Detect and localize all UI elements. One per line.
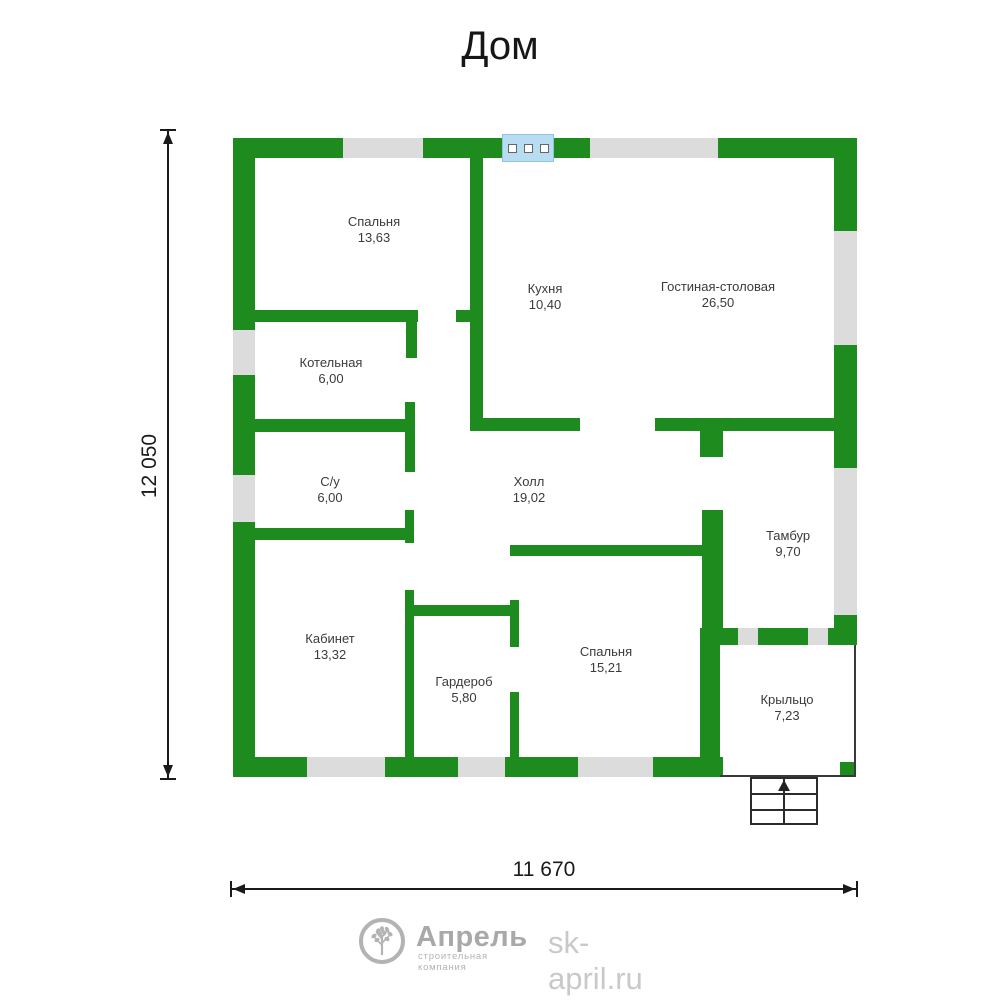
- wall-segment: [700, 645, 720, 777]
- wall-segment: [405, 402, 415, 472]
- room-name: Спальня: [580, 644, 632, 659]
- tree-icon: [367, 925, 397, 957]
- wall-segment: [700, 431, 723, 457]
- room-label-porch: Крыльцо 7,23: [760, 692, 813, 724]
- dimension-tick: [160, 129, 176, 131]
- arrow-left-icon: [233, 884, 245, 894]
- room-name: Кабинет: [305, 631, 354, 646]
- room-area: 19,02: [513, 490, 546, 505]
- width-dimension-label: 11 670: [513, 858, 576, 882]
- room-name: Холл: [514, 474, 545, 489]
- wall-segment: [834, 138, 857, 231]
- website-text: sk-april.ru: [548, 925, 643, 997]
- logo-circle: [359, 918, 405, 964]
- wall-segment: [385, 757, 458, 777]
- room-label-wardrobe: Гардероб 5,80: [435, 674, 492, 706]
- wall-segment: [828, 628, 857, 645]
- window-segment: [578, 757, 653, 777]
- bay-window: [502, 134, 554, 162]
- room-name: Гостиная-столовая: [661, 279, 775, 294]
- room-name: Крыльцо: [760, 692, 813, 707]
- wall-segment: [252, 528, 405, 540]
- room-area: 13,32: [314, 647, 347, 662]
- up-arrow-icon: [778, 780, 790, 791]
- wall-segment: [554, 138, 590, 158]
- window-segment: [738, 628, 758, 645]
- wall-segment: [233, 522, 255, 777]
- wall-segment: [406, 322, 417, 358]
- wall-segment: [255, 419, 405, 432]
- wall-segment: [505, 757, 578, 777]
- wall-segment: [510, 545, 702, 556]
- room-area: 6,00: [318, 371, 343, 386]
- wall-segment: [233, 375, 255, 475]
- arrow-right-icon: [843, 884, 855, 894]
- room-area: 26,50: [702, 295, 735, 310]
- wall-segment: [655, 418, 834, 431]
- wall-segment: [510, 600, 519, 647]
- room-label-kitchen: Кухня 10,40: [528, 281, 563, 313]
- wall-segment: [233, 138, 255, 330]
- wall-segment: [423, 138, 503, 158]
- room-area: 6,00: [317, 490, 342, 505]
- room-label-bedroom-2: Спальня 15,21: [580, 644, 632, 676]
- window-pane-icon: [540, 144, 549, 153]
- room-area: 7,23: [774, 708, 799, 723]
- room-name: Котельная: [300, 355, 363, 370]
- brand-name: Апрель: [416, 921, 528, 954]
- room-name: Гардероб: [435, 674, 492, 689]
- room-area: 13,63: [358, 230, 391, 245]
- wall-segment: [405, 510, 414, 543]
- room-label-bedroom-1: Спальня 13,63: [348, 214, 400, 246]
- room-name: Кухня: [528, 281, 563, 296]
- wall-segment: [510, 692, 519, 757]
- window-segment: [834, 231, 857, 345]
- stairs-step: [752, 793, 816, 795]
- room-name: Тамбур: [766, 528, 810, 543]
- wall-segment: [702, 510, 723, 645]
- floor-plan: Спальня 13,63 Кухня 10,40 Гостиная-столо…: [0, 0, 1000, 1000]
- wall-segment: [255, 310, 418, 322]
- room-label-vestibule: Тамбур 9,70: [766, 528, 810, 560]
- wall-segment: [834, 345, 857, 468]
- room-area: 9,70: [775, 544, 800, 559]
- brand-tagline: строительная компания: [418, 951, 488, 973]
- dimension-tick: [230, 881, 232, 897]
- dimension-tick: [856, 881, 858, 897]
- wall-segment: [700, 628, 738, 645]
- window-pane-icon: [524, 144, 533, 153]
- wall-segment: [456, 310, 470, 322]
- wall-segment: [470, 158, 483, 430]
- window-segment: [590, 138, 718, 158]
- arrow-up-icon: [163, 132, 173, 144]
- window-segment: [458, 757, 505, 777]
- floor-plan-page: Дом Спальня 13,63 Кухня 10,40 Гостиная-с…: [0, 0, 1000, 1000]
- wall-segment: [413, 605, 518, 616]
- window-pane-icon: [508, 144, 517, 153]
- room-area: 15,21: [590, 660, 623, 675]
- height-dimension-label: 12 050: [138, 434, 162, 498]
- room-area: 10,40: [529, 297, 562, 312]
- room-label-living-dining: Гостиная-столовая 26,50: [661, 279, 775, 311]
- window-segment: [307, 757, 385, 777]
- room-area: 5,80: [451, 690, 476, 705]
- window-segment: [343, 138, 423, 158]
- stairs: [750, 777, 818, 825]
- arrow-down-icon: [163, 765, 173, 777]
- wall-segment: [233, 757, 307, 777]
- wall-segment: [470, 418, 580, 431]
- vertical-dimension-line: [167, 131, 169, 779]
- wall-segment: [758, 628, 808, 645]
- dimension-tick: [160, 778, 176, 780]
- room-label-boiler: Котельная 6,00: [300, 355, 363, 387]
- room-label-office: Кабинет 13,32: [305, 631, 354, 663]
- room-label-hall: Холл 19,02: [513, 474, 546, 506]
- horizontal-dimension-line: [231, 888, 857, 890]
- room-name: С/у: [320, 474, 340, 489]
- room-name: Спальня: [348, 214, 400, 229]
- window-segment: [233, 475, 255, 522]
- window-segment: [233, 330, 255, 375]
- window-segment: [834, 468, 857, 615]
- stairs-step: [752, 809, 816, 811]
- room-label-bathroom: С/у 6,00: [317, 474, 342, 506]
- window-segment: [808, 628, 828, 645]
